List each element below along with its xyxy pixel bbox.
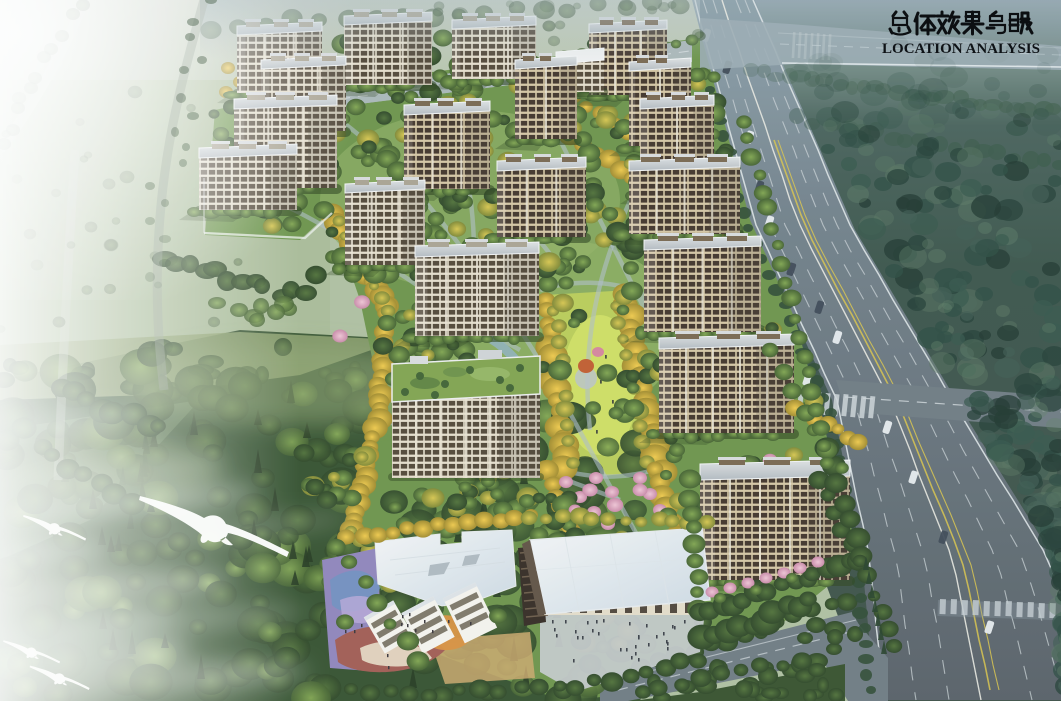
- svg-text:LOCATION ANALYSIS: LOCATION ANALYSIS: [882, 41, 1040, 57]
